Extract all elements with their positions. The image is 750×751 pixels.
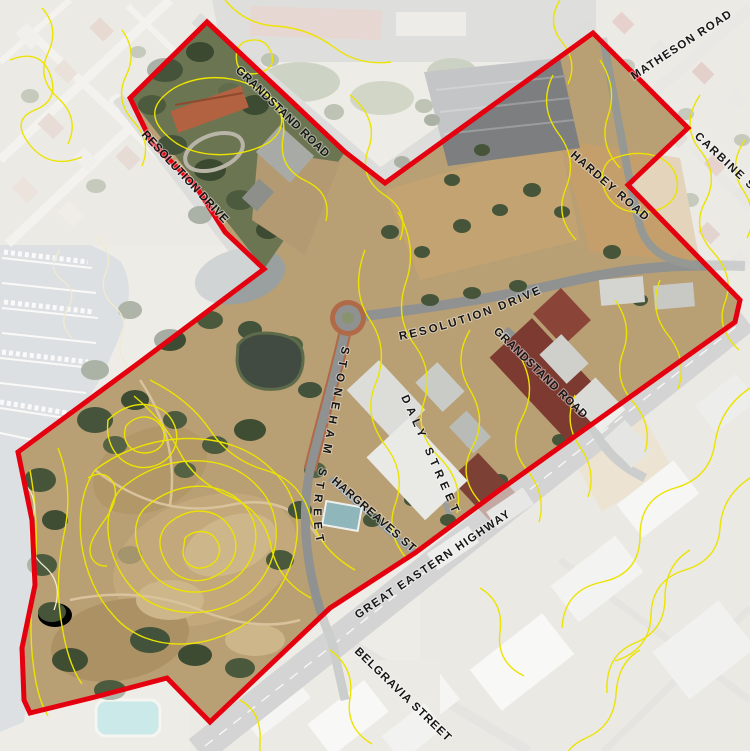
roundabout <box>330 300 366 336</box>
aerial-site-map: MATHESON ROAD CARBINE S HARDEY ROAD GRAN… <box>0 0 750 751</box>
dark-lake <box>237 333 303 389</box>
map-canvas: MATHESON ROAD CARBINE S HARDEY ROAD GRAN… <box>0 0 750 751</box>
